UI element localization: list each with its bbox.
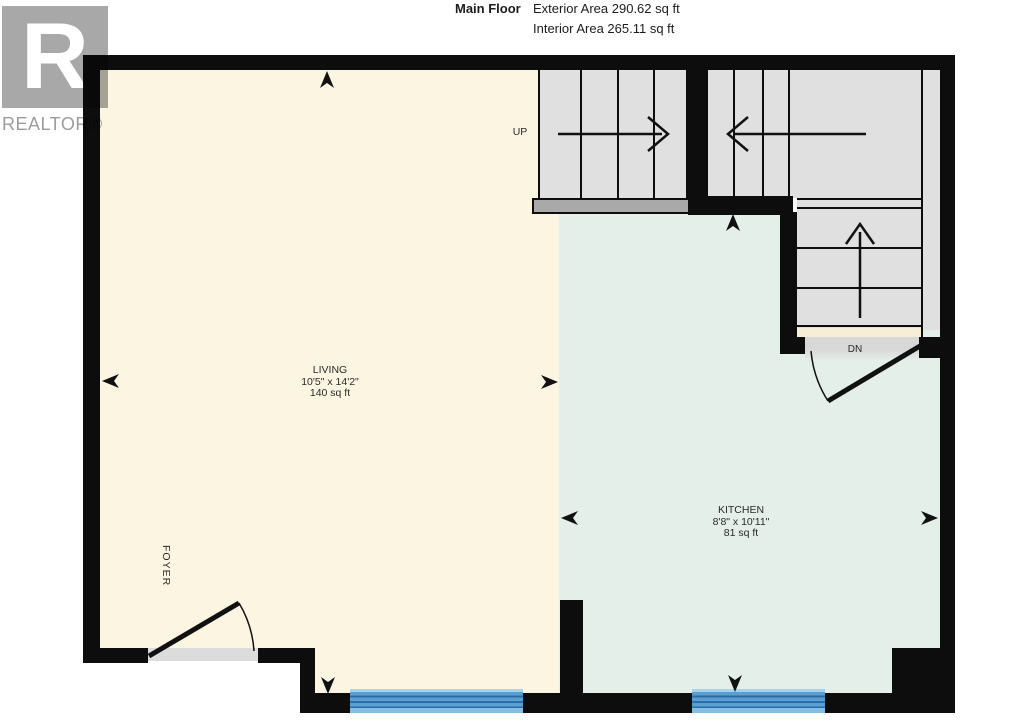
stairwell-side-line	[921, 68, 923, 337]
stairs-upper-right	[708, 68, 942, 198]
wall-stair-divider	[688, 68, 708, 215]
stair-tread-line	[797, 207, 921, 209]
wall-corner-block	[892, 648, 940, 713]
wall-right	[940, 55, 955, 713]
window-living	[350, 689, 523, 713]
stairs-down-label: DN	[840, 344, 870, 355]
realtor-logo-letter: R	[2, 6, 108, 106]
wall-left	[83, 55, 100, 663]
kitchen-label: KITCHEN 8'8" x 10'11" 81 sq ft	[666, 505, 816, 540]
realtor-logo-box: R	[2, 6, 108, 108]
stair-tread-line	[580, 70, 582, 199]
stair-tread-line	[617, 70, 619, 199]
stair-tread-line	[797, 247, 921, 249]
stair-tread-line	[797, 287, 921, 289]
plan-title: Main Floor	[455, 1, 521, 16]
foyer-door-threshold	[145, 648, 258, 661]
stairs-up-flight	[538, 68, 688, 201]
interior-area-text: Interior Area 265.11 sq ft	[533, 21, 674, 36]
room-name: KITCHEN	[666, 505, 816, 517]
wall-kitchen-top	[688, 196, 793, 215]
wall-kitchen-stairwell	[780, 212, 797, 338]
stair-landing-edge	[532, 198, 690, 214]
room-name: LIVING	[255, 365, 405, 377]
exterior-area-text: Exterior Area 290.62 sq ft	[533, 1, 680, 16]
realtor-logo: R REALTOR®	[2, 6, 122, 135]
stair-bottom-threshold	[797, 328, 921, 337]
foyer-label: FOYER	[160, 545, 172, 586]
wall-top	[83, 55, 955, 70]
room-area: 140 sq ft	[255, 388, 405, 400]
stair-tread-line	[733, 68, 735, 198]
stair-tread-line	[797, 198, 921, 200]
stair-tread-line	[788, 68, 790, 198]
living-room-floor-lower	[315, 648, 559, 693]
stairs-up-label: UP	[506, 126, 534, 138]
floorplan-canvas: Main Floor Exterior Area 290.62 sq ft In…	[0, 0, 1024, 723]
window-kitchen	[692, 689, 825, 713]
stair-tread-line	[762, 68, 764, 198]
realtor-logo-text: REALTOR®	[2, 114, 122, 135]
wall-dn-door-stub	[780, 337, 805, 354]
stair-tread-line	[797, 325, 921, 327]
wall-bottom-living-left	[300, 693, 350, 713]
wall-living-kitchen-divider	[560, 600, 583, 713]
living-room-label: LIVING 10'5" x 14'2" 140 sq ft	[255, 365, 405, 400]
wall-bottom-kitchen-left	[583, 693, 692, 713]
wall-dn-door-hinge	[919, 337, 955, 358]
room-area: 81 sq ft	[666, 528, 816, 540]
stair-tread-line	[653, 70, 655, 199]
wall-foyer-bottom-left	[83, 648, 148, 663]
